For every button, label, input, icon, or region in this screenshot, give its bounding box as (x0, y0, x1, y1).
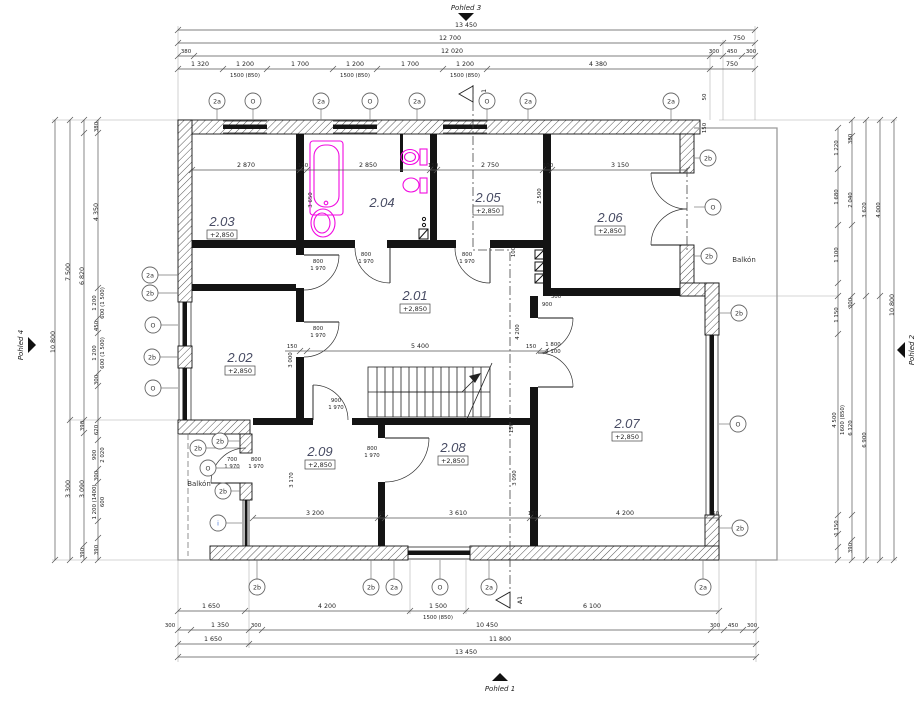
view-bottom-label: Pohled 1 (485, 685, 515, 693)
svg-text:2a: 2a (524, 98, 532, 105)
axis-bubble: 2b (719, 520, 748, 536)
svg-text:2b: 2b (736, 525, 744, 532)
view-left-label: Pohled 4 (17, 330, 25, 360)
svg-text:800: 800 (361, 252, 372, 258)
svg-text:300: 300 (165, 623, 176, 629)
svg-text:1 700: 1 700 (291, 61, 309, 68)
svg-text:600: 600 (100, 496, 106, 507)
axis-bubble: 2a (209, 93, 225, 120)
svg-text:450: 450 (94, 320, 100, 331)
svg-text:300: 300 (746, 49, 757, 55)
axis-bubble: 2b (212, 433, 240, 449)
bathroom-fixtures (310, 141, 427, 237)
svg-text:+2,850: +2,850 (403, 305, 427, 313)
svg-text:4 200: 4 200 (616, 510, 634, 517)
svg-text:2b: 2b (219, 488, 227, 495)
svg-text:3 200: 3 200 (306, 510, 324, 517)
axis-bubble: 2a (520, 93, 536, 120)
svg-text:2a: 2a (667, 98, 675, 105)
svg-text:O: O (485, 98, 490, 105)
svg-text:2 100: 2 100 (545, 349, 561, 355)
svg-text:300: 300 (94, 374, 100, 385)
axis-bubble: 2a (142, 267, 178, 283)
svg-text:O: O (206, 465, 211, 472)
svg-text:3 000: 3 000 (288, 352, 294, 368)
axis-bubble: O (694, 199, 721, 215)
axis-bubble: O (479, 93, 495, 120)
dims-top: 13 450 12 700 750 380 12 020 300 450 300… (175, 4, 758, 79)
svg-text:900: 900 (92, 449, 98, 460)
svg-text:1 970: 1 970 (358, 259, 374, 265)
svg-text:6 900: 6 900 (862, 432, 868, 448)
svg-text:2.08: 2.08 (439, 440, 466, 455)
svg-text:10 450: 10 450 (476, 622, 498, 629)
svg-text:1500 (850): 1500 (850) (423, 615, 453, 621)
svg-text:2 020: 2 020 (100, 447, 106, 463)
svg-text:1 800: 1 800 (545, 342, 561, 348)
svg-text:+2,850: +2,850 (615, 433, 639, 441)
svg-text:3 150: 3 150 (611, 162, 629, 169)
svg-text:1 100: 1 100 (834, 247, 840, 263)
svg-text:2.07: 2.07 (613, 416, 640, 431)
svg-text:2b: 2b (216, 438, 224, 445)
svg-text:O: O (151, 322, 156, 329)
svg-text:4 200: 4 200 (515, 324, 521, 340)
svg-text:2b: 2b (148, 354, 156, 361)
svg-text:2a: 2a (485, 584, 493, 591)
svg-text:1 650: 1 650 (202, 603, 220, 610)
svg-text:1 150: 1 150 (834, 307, 840, 323)
svg-text:O: O (438, 584, 443, 591)
svg-text:300: 300 (551, 294, 562, 300)
svg-text:1 200: 1 200 (346, 61, 364, 68)
room-205: 2.05 +2,850 (473, 190, 503, 215)
svg-text:3 620: 3 620 (862, 202, 868, 218)
svg-text:2a: 2a (213, 98, 221, 105)
staircase (368, 363, 492, 421)
svg-text:1 200: 1 200 (92, 295, 98, 311)
svg-text:6 820: 6 820 (79, 267, 86, 285)
svg-text:12 700: 12 700 (439, 35, 461, 42)
dims-right: 1 220 1 680 1 100 1 150 4 500 1600 (850)… (832, 117, 916, 563)
svg-text:+2,850: +2,850 (476, 207, 500, 215)
svg-text:1 970: 1 970 (310, 266, 326, 272)
svg-text:7 500: 7 500 (65, 263, 72, 281)
floor-plan-drawing: Balkón Balkón A 1 A1 2.01 +2,850 2.02 +2… (0, 0, 917, 701)
svg-text:3 090: 3 090 (512, 470, 518, 486)
svg-text:3 170: 3 170 (289, 472, 295, 488)
svg-text:50: 50 (702, 93, 708, 100)
svg-text:2a: 2a (390, 584, 398, 591)
svg-text:13 450: 13 450 (455, 649, 477, 656)
svg-text:2a: 2a (413, 98, 421, 105)
svg-text:O: O (711, 204, 716, 211)
svg-text:1 350: 1 350 (211, 622, 229, 629)
svg-text:2b: 2b (735, 310, 743, 317)
svg-text:2 850: 2 850 (359, 162, 377, 169)
svg-text:380: 380 (181, 49, 192, 55)
svg-text:1 970: 1 970 (328, 405, 344, 411)
svg-text:6 120: 6 120 (848, 420, 854, 436)
svg-text:1 200: 1 200 (92, 345, 98, 361)
svg-text:O: O (151, 385, 156, 392)
svg-text:2a: 2a (146, 272, 154, 279)
svg-text:1 700: 1 700 (401, 61, 419, 68)
svg-text:450: 450 (727, 49, 738, 55)
svg-text:900: 900 (331, 398, 342, 404)
svg-text:2.09: 2.09 (306, 444, 332, 459)
toilet-icon (420, 149, 427, 165)
svg-text:390: 390 (80, 547, 86, 558)
svg-text:800: 800 (251, 457, 262, 463)
axis-bubble: i (210, 515, 242, 531)
axis-bubble: O (245, 93, 261, 120)
room-208: 2.08 +2,850 (438, 440, 468, 465)
svg-text:O: O (368, 98, 373, 105)
floor-plan-canvas: Balkón Balkón A 1 A1 2.01 +2,850 2.02 +2… (0, 0, 917, 701)
svg-text:150: 150 (702, 122, 708, 133)
axis-bubble: 2b (142, 285, 178, 301)
svg-text:600 (1 500): 600 (1 500) (100, 337, 106, 369)
svg-text:2 870: 2 870 (237, 162, 255, 169)
svg-text:1 200 (1400): 1 200 (1400) (92, 484, 98, 519)
dims-bottom: 1 650 4 200 1 500 6 100 1500 (850) 300 1… (165, 603, 759, 693)
svg-text:300: 300 (94, 470, 100, 481)
svg-text:620: 620 (94, 424, 100, 435)
outer-walls (178, 120, 719, 560)
svg-text:390: 390 (94, 544, 100, 555)
balcony-left-label: Balkón (187, 480, 211, 488)
axis-bubble: 2b (719, 305, 747, 321)
svg-text:800: 800 (367, 446, 378, 452)
svg-text:13 450: 13 450 (455, 22, 477, 29)
svg-text:2b: 2b (705, 253, 713, 260)
svg-text:1 200: 1 200 (236, 61, 254, 68)
axis-bubble: 2b (363, 560, 379, 595)
svg-text:1 200: 1 200 (456, 61, 474, 68)
view-right-label: Pohled 2 (908, 334, 916, 365)
svg-text:300: 300 (251, 623, 262, 629)
svg-text:2.01: 2.01 (401, 288, 427, 303)
svg-text:700: 700 (227, 457, 238, 463)
svg-text:3 090: 3 090 (79, 480, 86, 498)
axis-bubble: O (719, 416, 746, 432)
svg-text:10 800: 10 800 (889, 294, 896, 316)
room-207: 2.07 +2,850 (612, 416, 642, 441)
interior-walls (192, 134, 680, 546)
axis-bubble: O (362, 93, 378, 120)
svg-text:2b: 2b (253, 584, 261, 591)
svg-text:+2,850: +2,850 (210, 231, 234, 239)
axis-bubble: 2a (663, 93, 679, 120)
svg-text:6 100: 6 100 (583, 603, 601, 610)
svg-text:300: 300 (709, 49, 720, 55)
svg-text:1500 (850): 1500 (850) (230, 73, 260, 79)
svg-text:2a: 2a (317, 98, 325, 105)
svg-text:2.04: 2.04 (368, 195, 394, 210)
svg-text:2 750: 2 750 (481, 162, 499, 169)
svg-text:150: 150 (528, 511, 539, 517)
svg-text:1 970: 1 970 (248, 464, 264, 470)
room-201: 2.01 +2,850 (400, 288, 430, 313)
svg-text:2 500: 2 500 (537, 188, 543, 204)
svg-text:10 800: 10 800 (50, 331, 57, 353)
svg-text:2.06: 2.06 (596, 210, 623, 225)
axis-bubble: 2a (409, 93, 425, 120)
svg-text:4 200: 4 200 (318, 603, 336, 610)
svg-text:150: 150 (509, 422, 515, 433)
room-204: 2.04 (368, 195, 394, 210)
axis-bubble: 2b (694, 248, 717, 264)
svg-text:2.02: 2.02 (226, 350, 253, 365)
svg-text:900: 900 (542, 302, 553, 308)
axis-bubble: 2b (694, 150, 716, 166)
svg-text:1 680: 1 680 (834, 189, 840, 205)
svg-text:3 610: 3 610 (449, 510, 467, 517)
svg-text:150: 150 (526, 344, 537, 350)
axis-bubble: O (145, 317, 178, 333)
axis-bubble: 2b (215, 483, 240, 499)
axis-bubble: 2a (695, 560, 711, 595)
svg-text:1 970: 1 970 (459, 259, 475, 265)
room-203: 2.03 +2,850 (207, 214, 237, 239)
svg-text:5 400: 5 400 (411, 343, 429, 350)
svg-text:4 000: 4 000 (876, 202, 882, 218)
room-206: 2.06 +2,850 (595, 210, 625, 235)
dims-left: 10 800 7 500 3 300 6 820 390 3 090 390 3… (17, 117, 106, 563)
svg-text:750: 750 (726, 61, 738, 68)
svg-text:2b: 2b (704, 155, 712, 162)
svg-text:150: 150 (428, 163, 439, 169)
svg-text:12 020: 12 020 (441, 48, 463, 55)
svg-text:1600 (850): 1600 (850) (840, 405, 846, 435)
svg-text:300: 300 (747, 623, 758, 629)
section-label-bottom: A1 (517, 596, 524, 604)
svg-text:+2,850: +2,850 (441, 457, 465, 465)
svg-text:800: 800 (313, 259, 324, 265)
axis-bubble: 2a (313, 93, 329, 120)
axis-bubble: 2b (144, 349, 178, 365)
svg-text:3 300: 3 300 (65, 480, 72, 498)
svg-text:4 500: 4 500 (832, 412, 838, 428)
svg-text:1 500: 1 500 (429, 603, 447, 610)
svg-text:750: 750 (733, 35, 745, 42)
balcony-right-label: Balkón (732, 256, 756, 264)
svg-text:1 220: 1 220 (834, 140, 840, 156)
svg-text:2b: 2b (367, 584, 375, 591)
svg-text:1 650: 1 650 (204, 636, 222, 643)
svg-text:1500 (850): 1500 (850) (340, 73, 370, 79)
axis-bubble: O (145, 380, 178, 396)
axis-bubbles: 2a O 2a O 2a O 2a 2a 2b 2b 2a O 2a 2a 2a… (142, 93, 748, 595)
svg-text:i: i (217, 520, 219, 527)
svg-text:4 380: 4 380 (589, 61, 607, 68)
axis-bubble: 2b (249, 560, 265, 595)
svg-text:150: 150 (298, 163, 309, 169)
room-labels: 2.01 +2,850 2.02 +2,850 2.03 +2,850 2.04… (207, 190, 642, 469)
room-209: 2.09 +2,850 (305, 444, 335, 469)
svg-text:+2,850: +2,850 (308, 461, 332, 469)
room-202: 2.02 +2,850 (225, 350, 255, 375)
svg-text:300: 300 (710, 623, 721, 629)
svg-text:4 350: 4 350 (93, 203, 100, 221)
svg-text:800: 800 (462, 252, 473, 258)
axis-bubble: O (432, 560, 448, 595)
axis-bubble: 2a (481, 560, 497, 595)
svg-text:3 650: 3 650 (308, 192, 314, 208)
svg-text:390: 390 (848, 542, 854, 553)
svg-text:2.03: 2.03 (208, 214, 235, 229)
svg-text:800: 800 (313, 326, 324, 332)
svg-text:2 040: 2 040 (848, 192, 854, 208)
svg-text:11 800: 11 800 (489, 636, 511, 643)
svg-text:+2,850: +2,850 (598, 227, 622, 235)
svg-text:390: 390 (80, 420, 86, 431)
svg-text:450: 450 (728, 623, 739, 629)
svg-text:150: 150 (287, 344, 298, 350)
svg-text:1 970: 1 970 (310, 333, 326, 339)
svg-text:1 970: 1 970 (224, 464, 240, 470)
svg-text:O: O (736, 421, 741, 428)
svg-text:2.05: 2.05 (474, 190, 501, 205)
svg-text:1 320: 1 320 (191, 61, 209, 68)
svg-text:+2,850: +2,850 (228, 367, 252, 375)
svg-text:2b: 2b (146, 290, 154, 297)
axis-bubble: 2a (386, 560, 402, 595)
window-symbols (179, 121, 718, 559)
view-top-label: Pohled 3 (451, 4, 481, 12)
svg-text:2a: 2a (699, 584, 707, 591)
svg-text:2b: 2b (194, 445, 202, 452)
svg-text:380: 380 (94, 121, 100, 132)
svg-text:600 (1 500): 600 (1 500) (100, 287, 106, 319)
svg-text:100: 100 (511, 246, 517, 257)
bidet-icon (420, 178, 427, 193)
svg-text:1500 (850): 1500 (850) (450, 73, 480, 79)
svg-text:O: O (251, 98, 256, 105)
svg-text:1 970: 1 970 (364, 453, 380, 459)
